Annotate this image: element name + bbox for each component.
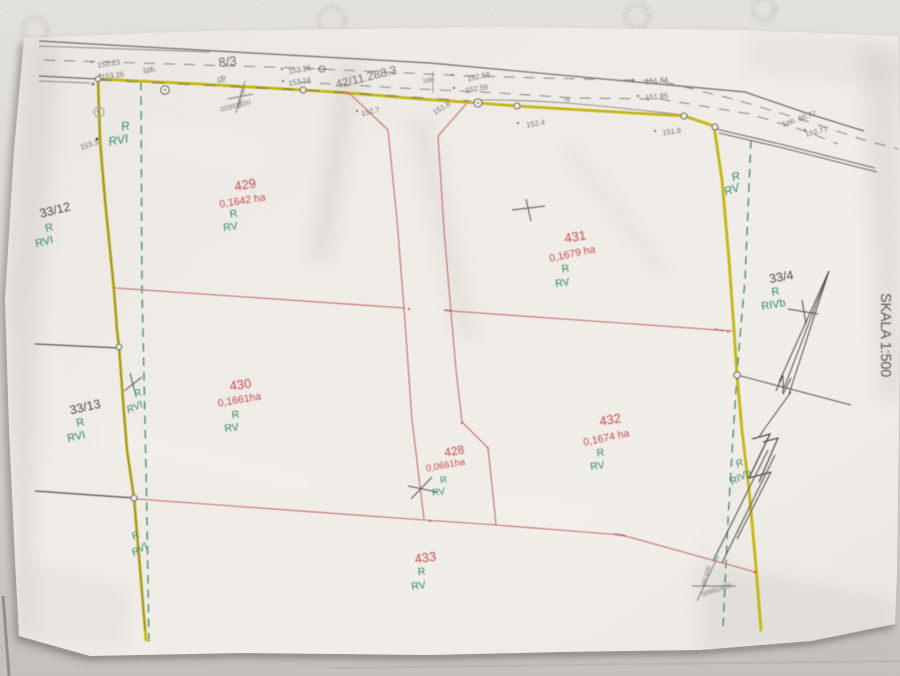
svg-text:RV: RV <box>224 421 240 435</box>
svg-text:RV: RV <box>589 459 605 473</box>
svg-text:430: 430 <box>229 376 253 394</box>
svg-text:RV: RV <box>222 220 238 234</box>
svg-text:-N: -N <box>563 98 570 105</box>
svg-text:8/3: 8/3 <box>218 53 238 70</box>
svg-text:433: 433 <box>414 549 438 567</box>
svg-text:RV: RV <box>554 276 570 290</box>
svg-text:RV: RV <box>411 579 427 593</box>
svg-text:RV: RV <box>431 486 446 499</box>
svg-text:SKALA 1:500: SKALA 1:500 <box>877 293 893 377</box>
